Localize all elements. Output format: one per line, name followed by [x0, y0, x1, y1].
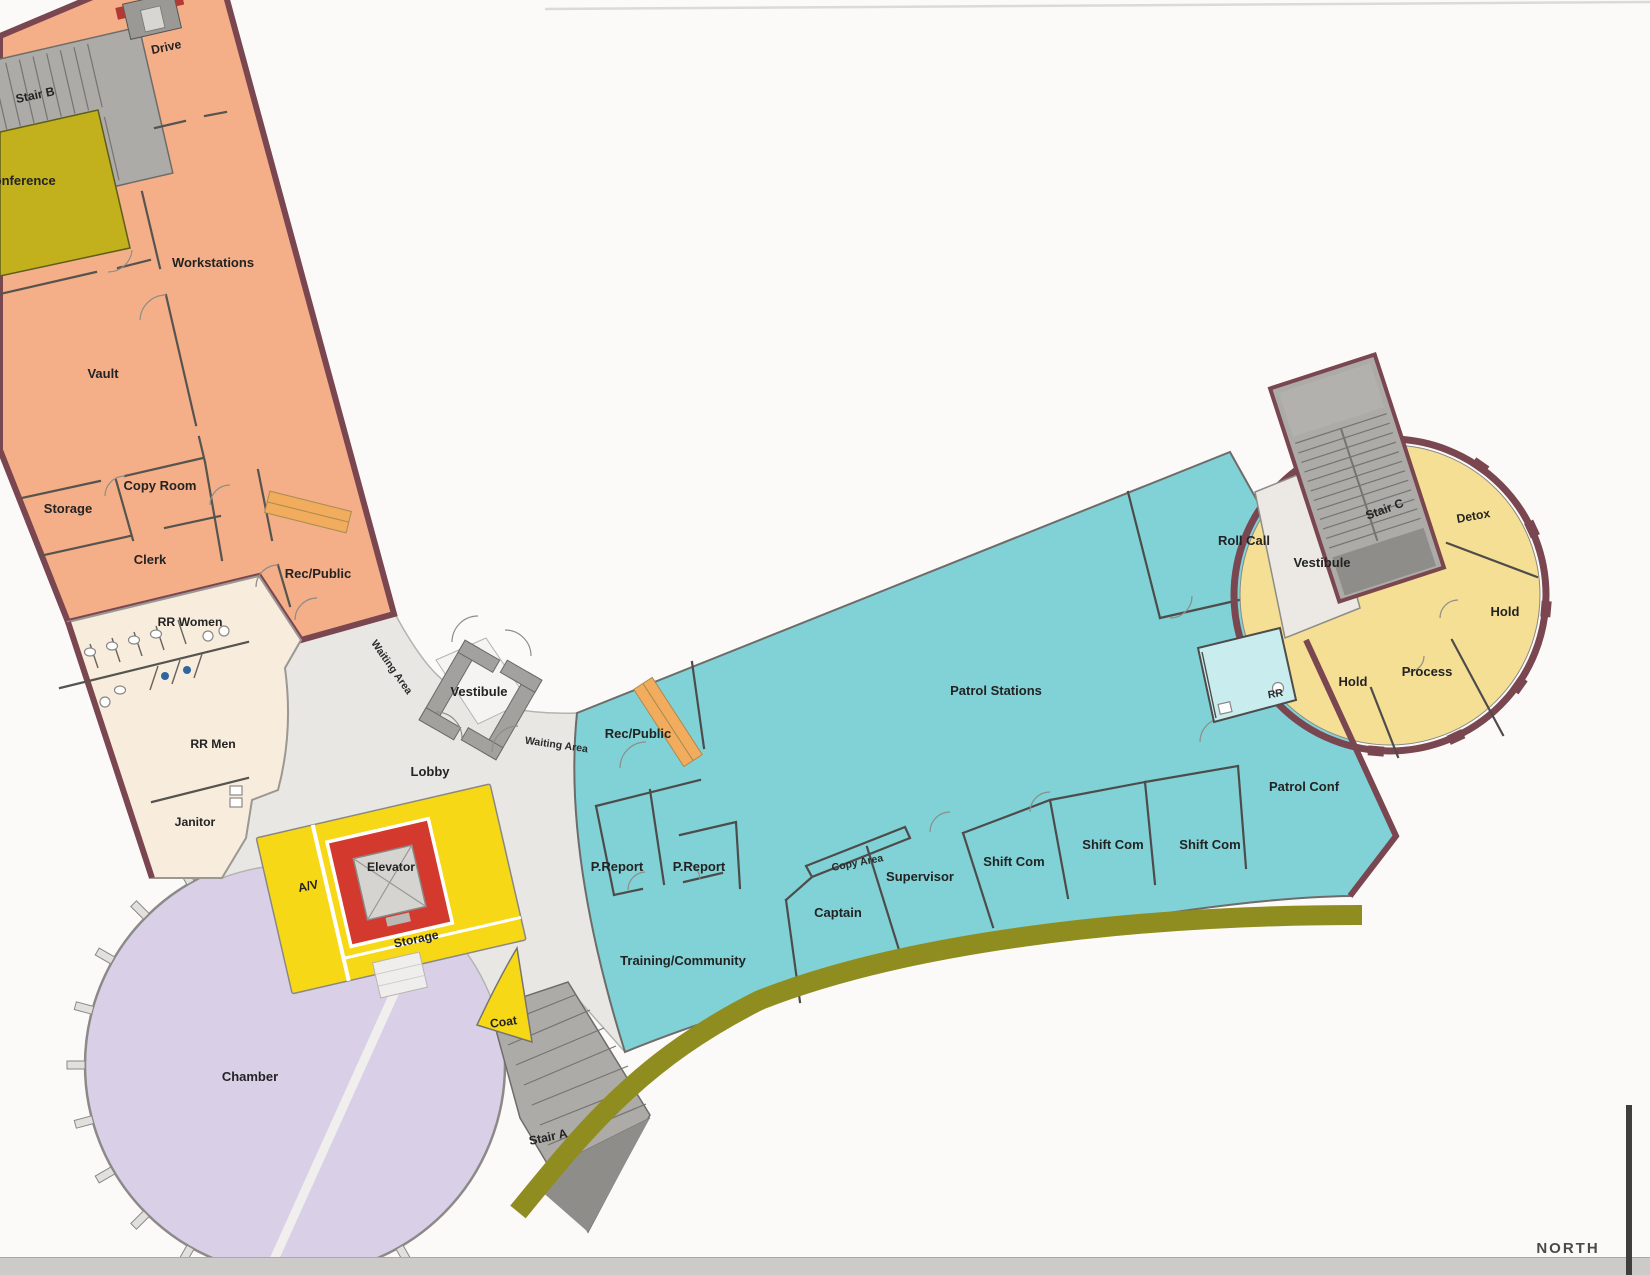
- label-conference: Conference: [0, 173, 56, 188]
- label-vestibule-main: Vestibule: [450, 684, 507, 699]
- floor-plan-page: Drive Stair B Conference Workstations Va…: [0, 0, 1650, 1275]
- scan-artifact-right-edge: [1626, 1105, 1632, 1275]
- label-workstations: Workstations: [172, 255, 254, 270]
- label-patrol-conf: Patrol Conf: [1269, 779, 1340, 794]
- label-roll-call: Roll Call: [1218, 533, 1270, 548]
- label-storage-admin: Storage: [44, 501, 92, 516]
- label-hold-west: Hold: [1339, 674, 1368, 689]
- label-lobby: Lobby: [411, 764, 451, 779]
- label-process: Process: [1402, 664, 1453, 679]
- label-captain: Captain: [814, 905, 862, 920]
- scan-artifact-bottom-band: [0, 1258, 1650, 1275]
- label-supervisor: Supervisor: [886, 869, 954, 884]
- urinal-fixture: [161, 672, 169, 680]
- label-chamber: Chamber: [222, 1069, 278, 1084]
- label-rr-women: RR Women: [158, 615, 223, 629]
- label-shift-com-3: Shift Com: [1179, 837, 1240, 852]
- label-rr-men: RR Men: [190, 737, 235, 751]
- label-training-community: Training/Community: [620, 953, 746, 968]
- label-vestibule-patrol: Vestibule: [1293, 555, 1350, 570]
- label-p-report-1: P.Report: [591, 859, 644, 874]
- label-shift-com-2: Shift Com: [1082, 837, 1143, 852]
- label-copy-room: Copy Room: [124, 478, 197, 493]
- label-rec-public-admin: Rec/Public: [285, 566, 351, 581]
- urinal-fixture: [183, 666, 191, 674]
- label-p-report-2: P.Report: [673, 859, 726, 874]
- label-shift-com-1: Shift Com: [983, 854, 1044, 869]
- rr-toilet-fixture: [1218, 702, 1232, 714]
- north-indicator-label: NORTH: [1536, 1240, 1599, 1257]
- floor-plan-drawing: Drive Stair B Conference Workstations Va…: [0, 0, 1650, 1275]
- label-vault: Vault: [87, 366, 119, 381]
- label-rec-public-patrol: Rec/Public: [605, 726, 671, 741]
- label-janitor: Janitor: [175, 815, 216, 829]
- label-patrol-stations: Patrol Stations: [950, 683, 1042, 698]
- label-hold-east: Hold: [1491, 604, 1520, 619]
- label-clerk: Clerk: [134, 552, 167, 567]
- label-elevator: Elevator: [367, 860, 415, 874]
